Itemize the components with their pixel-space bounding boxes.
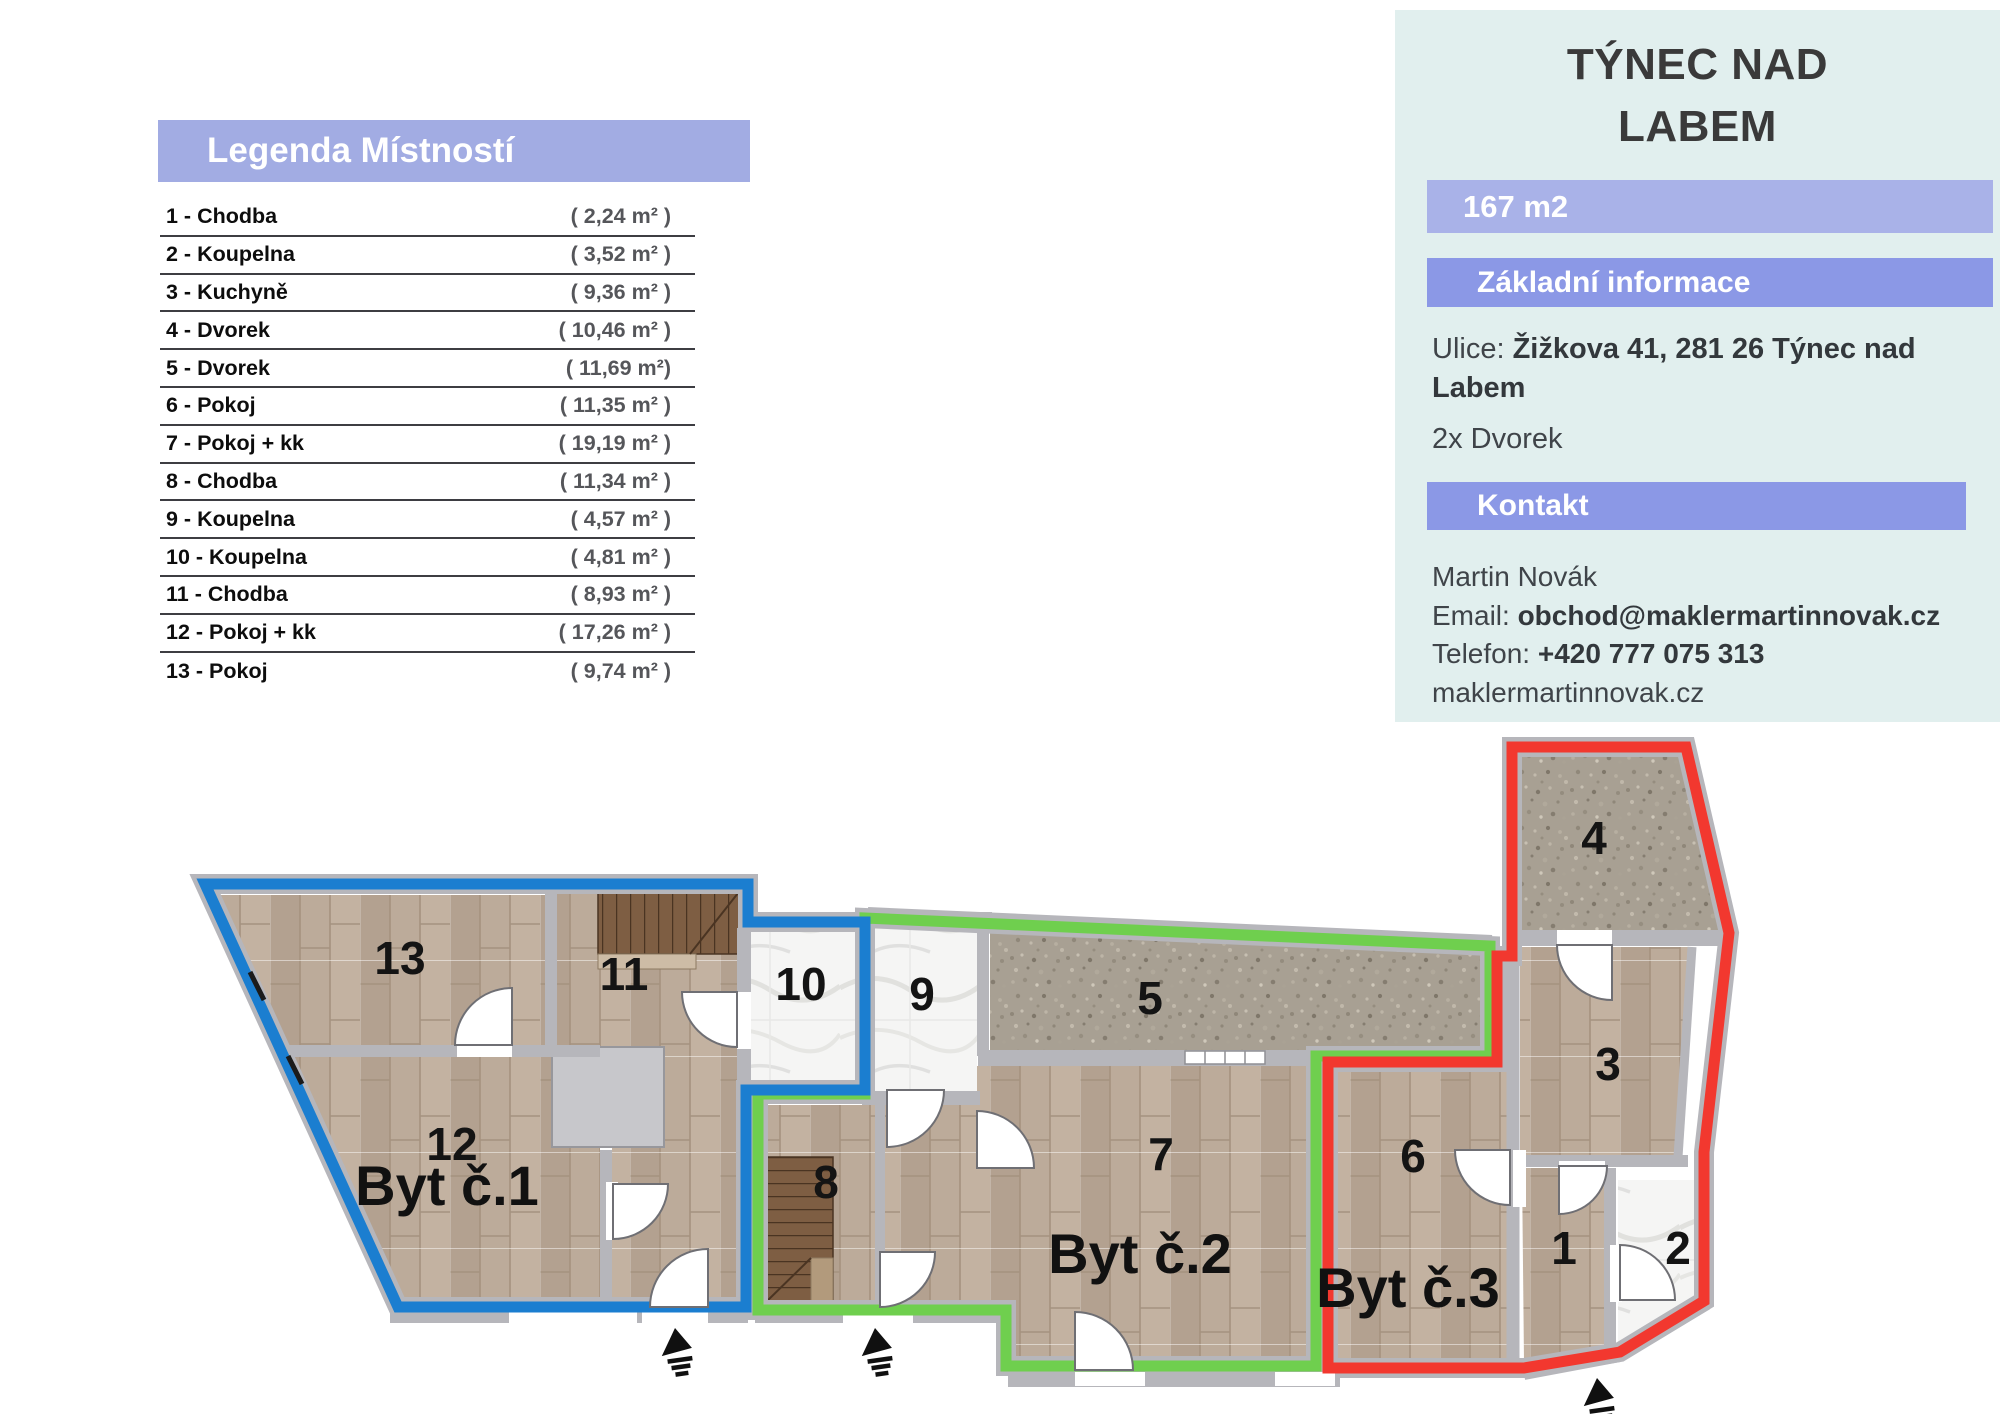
room-1-label: 1 [1551, 1222, 1577, 1274]
apartment-label-byt1: Byt č.1 [355, 1154, 539, 1217]
entrance-arrow-icon [658, 1326, 695, 1378]
floor-plan: 12345678910111213Byt č.1Byt č.2Byt č.3 [0, 0, 2000, 1414]
apartment-label-byt2: Byt č.2 [1048, 1222, 1232, 1285]
stairs-room11 [598, 888, 742, 954]
apartment-label-byt3: Byt č.3 [1316, 1256, 1500, 1319]
room-11-label: 11 [600, 948, 649, 1000]
room-10-label: 10 [775, 958, 826, 1010]
entrance-arrow-icon [858, 1326, 895, 1378]
room-4-label: 4 [1581, 812, 1607, 864]
room-7-label: 7 [1148, 1128, 1174, 1180]
floor-plan-svg: 12345678910111213Byt č.1Byt č.2Byt č.3 [0, 0, 2000, 1414]
door-gap [1513, 1150, 1526, 1207]
stairs-landing-room8 [811, 1258, 833, 1307]
room-13-label: 13 [374, 932, 425, 984]
door-gap [457, 1045, 512, 1057]
door-gap [1275, 1372, 1335, 1386]
room-6-label: 6 [1400, 1130, 1426, 1182]
door-gap [737, 992, 751, 1049]
room-2-label: 2 [1665, 1222, 1691, 1274]
page: { "legend": { "title": "Legenda Místnost… [0, 0, 2000, 1414]
room-5-label: 5 [1137, 972, 1163, 1024]
room-9-label: 9 [909, 968, 935, 1020]
room-3-label: 3 [1595, 1038, 1621, 1090]
room-8-label: 8 [813, 1156, 839, 1208]
closet-block [552, 1047, 664, 1147]
entrance-arrow-icon [1580, 1376, 1617, 1414]
door-gap [1075, 1372, 1145, 1386]
door-gap [1557, 930, 1612, 946]
